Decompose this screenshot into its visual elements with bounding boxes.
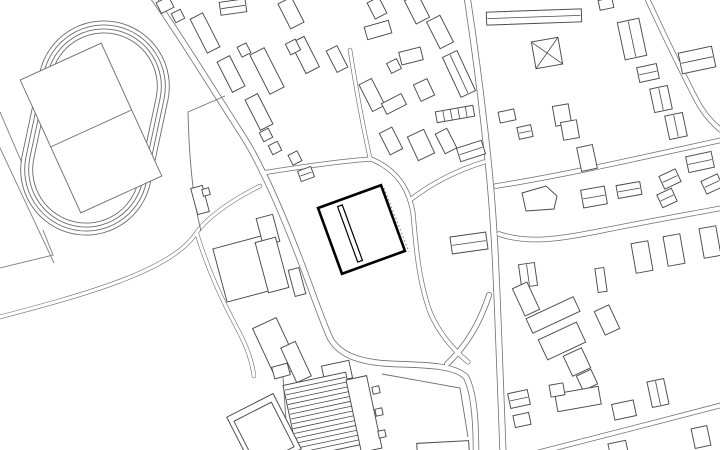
building-footprint bbox=[701, 174, 720, 194]
building-footprint bbox=[699, 226, 720, 258]
building-footprint bbox=[413, 79, 434, 102]
building-footprint bbox=[608, 440, 628, 450]
building-footprint bbox=[407, 129, 434, 160]
building-footprint bbox=[372, 386, 380, 394]
building-footprint bbox=[219, 0, 247, 15]
building-footprint bbox=[498, 109, 516, 123]
building-footprint bbox=[631, 241, 653, 273]
building-footprint bbox=[637, 64, 660, 83]
building-footprint bbox=[190, 13, 220, 53]
building-footprint bbox=[561, 120, 580, 141]
building-footprint bbox=[435, 105, 474, 122]
building-footprint bbox=[237, 43, 251, 57]
building-footprint bbox=[250, 48, 284, 94]
building-footprint bbox=[659, 169, 681, 189]
highlight-building bbox=[318, 185, 405, 274]
running-track bbox=[8, 9, 181, 248]
building-footprint bbox=[549, 383, 565, 397]
building-footprint bbox=[217, 56, 245, 93]
building-footprint bbox=[512, 282, 539, 316]
building-footprint bbox=[612, 400, 637, 420]
building-footprint bbox=[456, 140, 485, 161]
building-footprint bbox=[378, 430, 386, 438]
site-plan bbox=[0, 0, 720, 450]
building-footprint bbox=[522, 186, 557, 211]
building-footprint bbox=[577, 145, 598, 172]
building-footprint bbox=[598, 0, 614, 10]
building-footprint bbox=[486, 9, 581, 25]
building-footprint bbox=[442, 51, 475, 98]
building-footprint bbox=[657, 188, 677, 207]
building-footprint bbox=[202, 188, 211, 197]
building-footprint bbox=[617, 18, 646, 60]
building-footprint bbox=[399, 47, 423, 65]
building-footprint bbox=[517, 125, 533, 140]
building-footprint bbox=[531, 37, 562, 68]
building-footprint bbox=[427, 15, 454, 49]
building-footprint bbox=[364, 20, 392, 39]
building-footprint bbox=[450, 232, 488, 254]
building-footprint bbox=[381, 94, 406, 115]
building-footprint bbox=[268, 141, 281, 154]
building-footprint bbox=[245, 94, 273, 131]
building-footprint bbox=[171, 9, 184, 22]
site-plan-map bbox=[0, 0, 720, 450]
building-footprint bbox=[581, 186, 608, 208]
building-footprint bbox=[508, 390, 531, 409]
building-footprint bbox=[387, 59, 402, 74]
building-footprint bbox=[665, 112, 688, 139]
building-footprint bbox=[691, 426, 711, 449]
building-footprint bbox=[404, 0, 429, 24]
building-footprint bbox=[326, 46, 348, 73]
building-footprint bbox=[278, 0, 304, 29]
building-footprint bbox=[435, 128, 457, 154]
building-footprint bbox=[156, 0, 174, 14]
building-footprint bbox=[379, 127, 402, 155]
building-footprint bbox=[367, 0, 387, 19]
building-footprint bbox=[513, 412, 531, 427]
building-footprint bbox=[686, 151, 715, 172]
building-footprint bbox=[595, 267, 607, 292]
building-footprint bbox=[678, 46, 716, 74]
building-footprint bbox=[650, 85, 673, 112]
building-footprint bbox=[594, 305, 619, 335]
building-footprint bbox=[647, 379, 669, 408]
building-footprint bbox=[375, 408, 383, 416]
building-footprint bbox=[417, 441, 470, 450]
building-footprint bbox=[288, 151, 302, 165]
building-footprint bbox=[616, 182, 642, 199]
building-footprint bbox=[663, 234, 685, 266]
building-footprint bbox=[359, 78, 385, 111]
